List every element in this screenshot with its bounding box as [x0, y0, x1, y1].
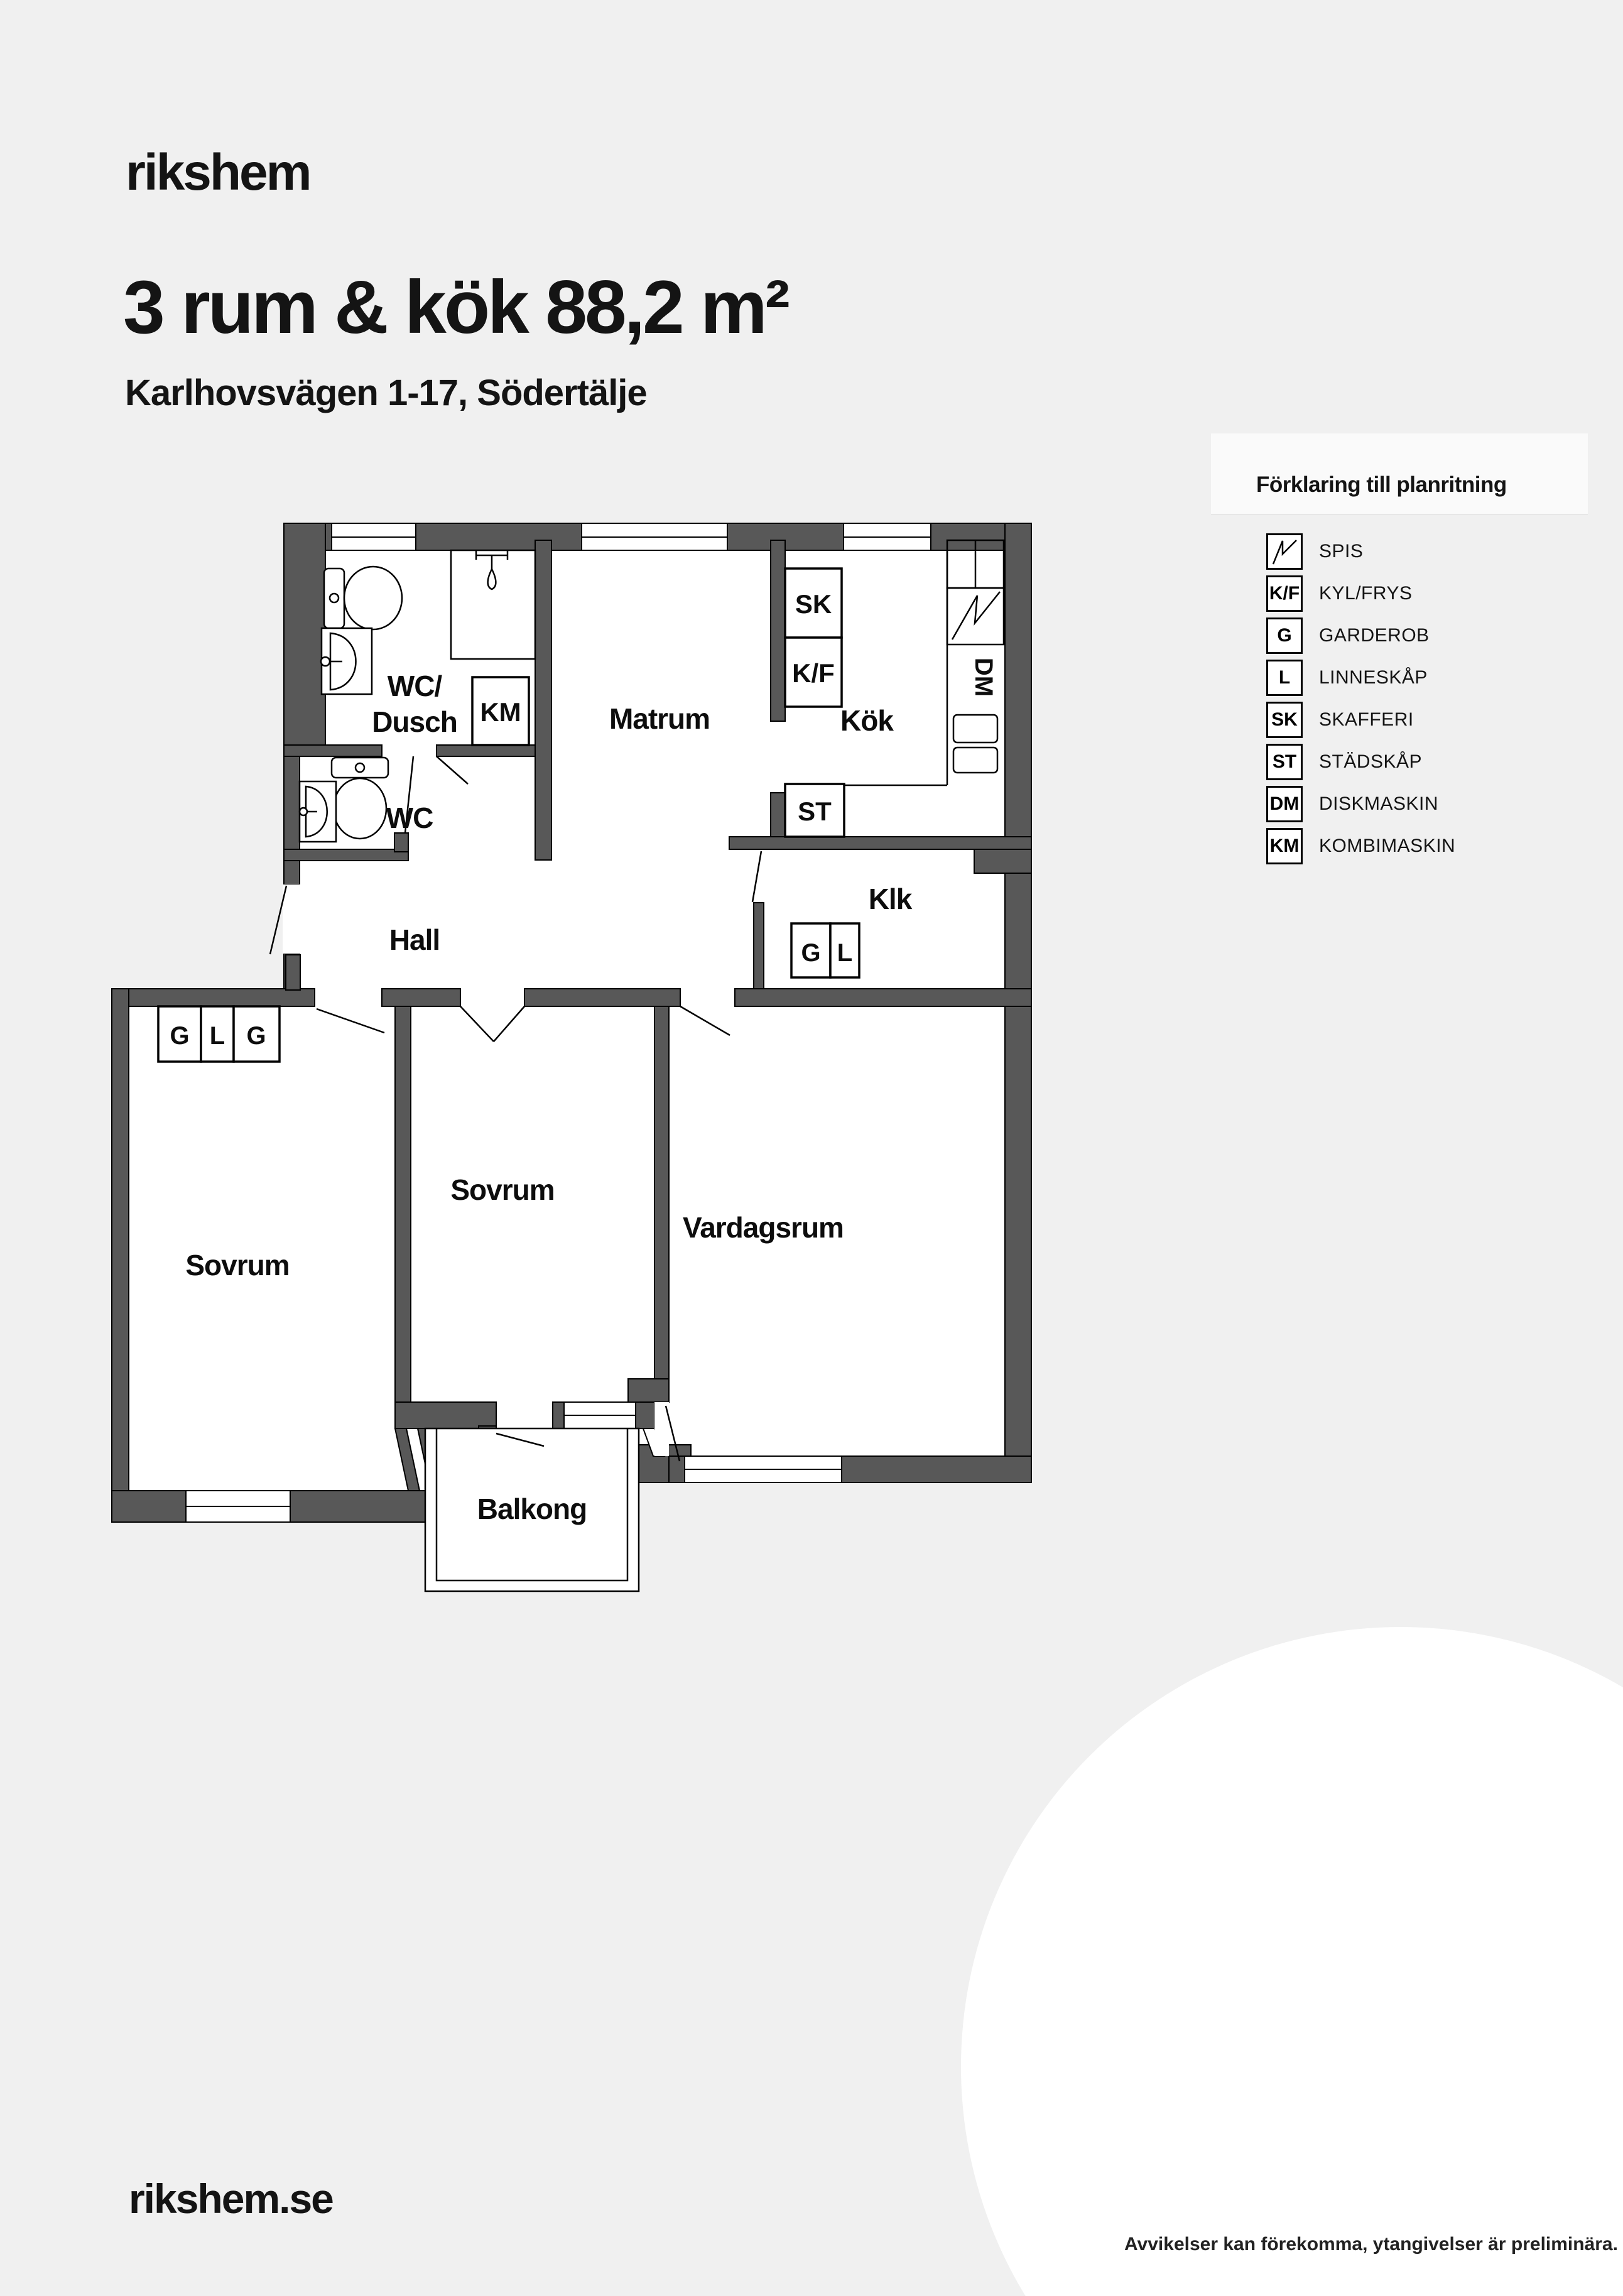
- legend-symbol-st: ST: [1266, 744, 1303, 780]
- spis-icon: [1266, 533, 1303, 570]
- legend-row-st: ST STÄDSKÅP: [1266, 744, 1422, 780]
- page-title: 3 rum & kök 88,2 m²: [123, 264, 788, 351]
- toilet-icon-wc-dusch: [324, 567, 402, 629]
- legend-symbol-g: G: [1266, 618, 1303, 654]
- sink-icon-wc: [300, 781, 336, 842]
- room-label-sovrum-left: Sovrum: [185, 1249, 289, 1281]
- room-label-kok: Kök: [840, 704, 894, 737]
- legend-symbol-l: L: [1266, 660, 1303, 696]
- legend-label-spis: SPIS: [1319, 541, 1363, 562]
- footer-logo: rikshem.se: [129, 2175, 333, 2223]
- legend-row-dm: DM DISKMASKIN: [1266, 786, 1438, 822]
- cabinet-label-annex-l: L: [210, 1022, 225, 1050]
- legend-symbol-sk: SK: [1266, 702, 1303, 738]
- legend-label-g: GARDEROB: [1319, 625, 1430, 646]
- legend-label-l: LINNESKÅP: [1319, 667, 1428, 688]
- legend-label-dm: DISKMASKIN: [1319, 793, 1438, 815]
- legend-row-spis: SPIS: [1266, 533, 1363, 570]
- legend-title: Förklaring till planritning: [1256, 472, 1507, 498]
- legend-label-sk: SKAFFERI: [1319, 709, 1414, 731]
- room-label-wc: WC: [386, 802, 433, 834]
- page: rikshem 3 rum & kök 88,2 m² Karlhovsväge…: [0, 0, 1623, 2296]
- cabinet-label-annex-g1: G: [170, 1022, 189, 1050]
- legend-symbol-kf: K/F: [1266, 575, 1303, 612]
- decorative-circle: [961, 1627, 1623, 2296]
- legend-row-g: G GARDEROB: [1266, 618, 1430, 654]
- legend-label-km: KOMBIMASKIN: [1319, 835, 1455, 857]
- footer-disclaimer: Avvikelser kan förekomma, ytangivelser ä…: [1124, 2234, 1539, 2255]
- cabinet-label-sk: SK: [795, 589, 832, 619]
- room-label-hall: Hall: [389, 923, 440, 956]
- legend-row-kf: K/F KYL/FRYS: [1266, 575, 1413, 612]
- room-label-sovrum-mid: Sovrum: [450, 1173, 554, 1206]
- cabinet-label-annex-g2: G: [246, 1022, 266, 1050]
- page-subtitle: Karlhovsvägen 1-17, Södertälje: [125, 372, 647, 414]
- legend-label-kf: KYL/FRYS: [1319, 583, 1413, 604]
- cabinet-label-klk-l: L: [837, 939, 852, 967]
- room-label-wc-dusch-2: Dusch: [372, 705, 457, 738]
- legend-label-st: STÄDSKÅP: [1319, 751, 1422, 773]
- legend-symbol-km: KM: [1266, 828, 1303, 864]
- room-label-balkong: Balkong: [477, 1493, 587, 1525]
- cabinet-label-st: ST: [798, 797, 832, 826]
- room-label-klk: Klk: [869, 883, 913, 915]
- legend-symbol-dm: DM: [1266, 786, 1303, 822]
- cabinet-label-kf: K/F: [792, 658, 835, 688]
- cabinet-label-dm: DM: [970, 658, 997, 697]
- room-label-wc-dusch-1: WC/: [388, 670, 443, 702]
- room-label-vardagsrum: Vardagsrum: [683, 1211, 844, 1244]
- sink-icon-wc-dusch: [321, 628, 372, 694]
- room-label-matrum: Matrum: [609, 702, 710, 735]
- cabinet-label-km: KM: [480, 697, 521, 727]
- legend-row-sk: SK SKAFFERI: [1266, 702, 1414, 738]
- floorplan: WC/ Dusch WC Hall Matrum Kök Klk Sovrum …: [94, 503, 1068, 1621]
- legend-row-km: KM KOMBIMASKIN: [1266, 828, 1455, 864]
- brand-logo: rikshem: [126, 143, 310, 202]
- legend-row-l: L LINNESKÅP: [1266, 660, 1428, 696]
- toilet-icon-wc: [332, 758, 388, 839]
- cabinet-label-klk-g: G: [801, 939, 820, 967]
